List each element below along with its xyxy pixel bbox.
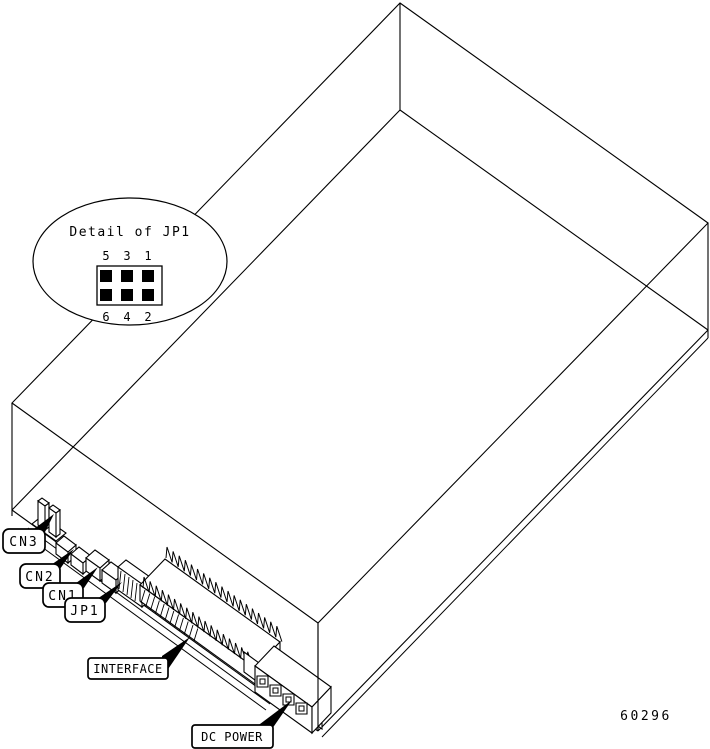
- jp1-label-text: JP1: [70, 604, 99, 619]
- enclosure-vertical-edges: [12, 3, 708, 731]
- jumper-pin-4: [121, 289, 133, 301]
- jumper-pin-6: [100, 289, 112, 301]
- interface-label-text: INTERFACE: [93, 662, 163, 676]
- figure-number: 60296: [620, 709, 672, 724]
- diagram-canvas: CN3 CN2 CN1 JP1 INTERFACE DC POWER Detai…: [0, 0, 710, 749]
- jumper-pin-1: [142, 270, 154, 282]
- jumper-pin-5: [100, 270, 112, 282]
- pin-number-3: 3: [123, 249, 130, 263]
- jumper-pin-3: [121, 270, 133, 282]
- pin-number-4: 4: [123, 310, 130, 324]
- enclosure-bottom-rim: [322, 338, 708, 737]
- jp1-detail-callout: Detail of JP1 5 3 1 6 4 2: [33, 198, 227, 325]
- detail-title: Detail of JP1: [69, 225, 190, 240]
- pin-number-5: 5: [102, 249, 109, 263]
- pin-number-6: 6: [102, 310, 109, 324]
- drive-isometric-diagram: CN3 CN2 CN1 JP1 INTERFACE DC POWER Detai…: [0, 0, 710, 749]
- pin-number-1: 1: [144, 249, 151, 263]
- jumper-pin-2: [142, 289, 154, 301]
- pin-number-2: 2: [144, 310, 151, 324]
- jumper-pin-grid: [97, 266, 162, 305]
- dc-power-label-text: DC POWER: [201, 730, 263, 744]
- cn3-label-text: CN3: [9, 535, 38, 550]
- drive-wireframe: [12, 3, 708, 737]
